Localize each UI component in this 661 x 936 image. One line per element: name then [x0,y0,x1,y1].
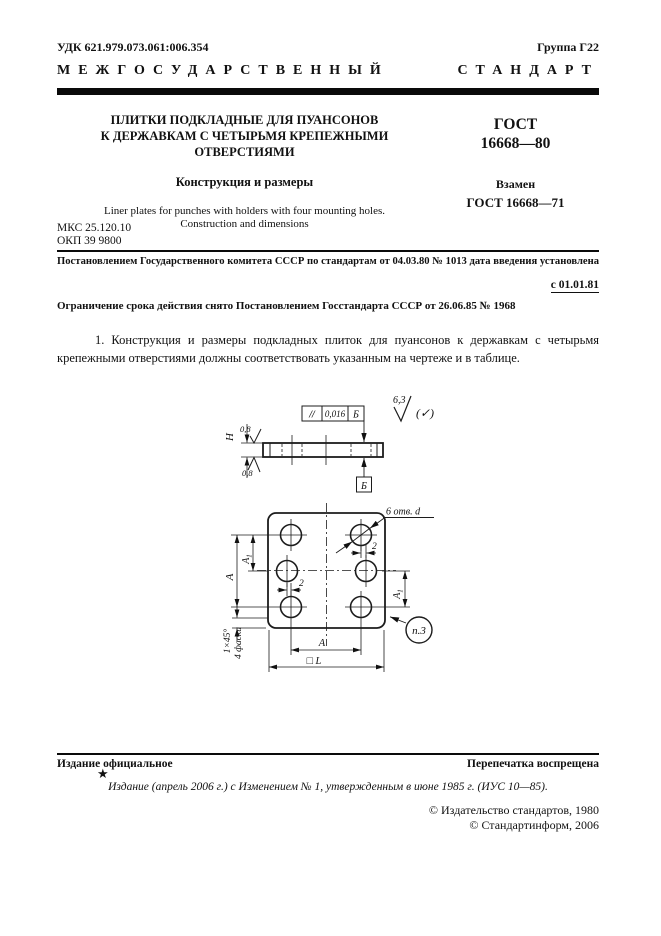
divider-rule-bottom [57,753,599,755]
doc-title: ПЛИТКИ ПОДКЛАДНЫЕ ДЛЯ ПУАНСОНОВ К ДЕРЖАВ… [57,112,432,160]
dim-A-bottom-label: А [318,638,326,649]
roughness-bottom-value: 0,8 [242,468,253,478]
dimension-L-bottom [269,630,384,672]
roughness-check-top-icon [250,429,261,443]
reprint-forbidden-label: Перепечатка воспрещена [467,758,599,770]
height-label: Н [224,432,236,442]
effective-date: с 01.01.81 [57,279,599,291]
dim-A1-right-label: А1 [392,589,405,600]
copyright-block: © Издательство стандартов, 1980 © Станда… [57,803,599,832]
technical-drawing: // 0,016 Б Б 6,3 (✓) Н 0,8 0,8 6 отв. d … [215,390,465,690]
dim-offset-left-label: 2 [299,579,304,589]
tolerance-value: 0,016 [325,409,346,419]
tolerance-datum: Б [352,410,359,421]
dim-A1-left-label: А1 [241,554,254,565]
doc-title-line3: ОТВЕРСТИЯМИ [57,144,432,160]
chamfer-size-label: 1×45° [222,629,233,654]
replaces-number: ГОСТ 16668—71 [432,195,599,211]
official-edition-label: Издание официальное [57,758,173,770]
title-block: ПЛИТКИ ПОДКЛАДНЫЕ ДЛЯ ПУАНСОНОВ К ДЕРЖАВ… [57,112,599,231]
standard-kind: МЕЖГОСУДАРСТВЕННЫЙ СТАНДАРТ [57,63,599,79]
header-divider-bar [57,88,599,95]
holes-label: 6 отв. d [386,507,421,518]
doc-title-line1: ПЛИТКИ ПОДКЛАДНЫЕ ДЛЯ ПУАНСОНОВ [57,112,432,128]
roughness-top-value: 0,8 [240,424,251,434]
footer-row: Издание официальное Перепечатка воспреще… [57,758,599,770]
replaces-label: Взамен [432,177,599,192]
gost-number: 16668—80 [432,134,599,153]
classification-codes: МКС 25.120.10 ОКП 39 9800 [57,222,131,247]
divider-rule-top [57,250,599,252]
copyright-line2: © Стандартинформ, 2006 [57,818,599,833]
standard-kind-word1: МЕЖГОСУДАРСТВЕННЫЙ [57,63,389,79]
body-paragraph: 1. Конструкция и размеры подкладных плит… [57,332,599,367]
doc-title-line2: К ДЕРЖАВКАМ С ЧЕТЫРЬМЯ КРЕПЕЖНЫМИ [57,128,432,144]
roughness-general-bracket: (✓) [416,406,434,420]
dim-L-label: □ L [307,656,322,667]
decree-text: Постановлением Государственного комитета… [57,256,599,267]
side-view-plate [263,443,383,457]
udk-code: УДК 621.979.073.061:006.354 [57,40,209,55]
doc-title-en-line1: Liner plates for punches with holders wi… [57,205,432,218]
star-icon: ★ [97,766,109,782]
doc-subtitle: Конструкция и размеры [57,175,432,190]
reference-note-label: п.3 [412,625,426,637]
dim-A-left-label: А [224,573,236,581]
datum-label: Б [360,481,367,492]
okp-code: ОКП 39 9800 [57,235,131,248]
document-page: УДК 621.979.073.061:006.354 Группа Г22 М… [0,0,661,936]
group-code: Группа Г22 [537,40,599,55]
gost-label: ГОСТ [432,115,599,134]
limitation-text: Ограничение срока действия снято Постано… [57,300,599,312]
plan-view [231,503,434,672]
chamfer-count-label: 4 фаски [233,627,244,659]
copyright-line1: © Издательство стандартов, 1980 [57,803,599,818]
standard-kind-word2: СТАНДАРТ [457,63,599,79]
roughness-general-value: 6,3 [393,395,406,406]
header-row: УДК 621.979.073.061:006.354 Группа Г22 [57,40,599,55]
mks-code: МКС 25.120.10 [57,222,131,235]
gost-code: ГОСТ 16668—80 [432,115,599,153]
edition-note: Издание (апрель 2006 г.) с Изменением № … [57,781,599,793]
dim-offset-right-label: 2 [372,542,377,552]
